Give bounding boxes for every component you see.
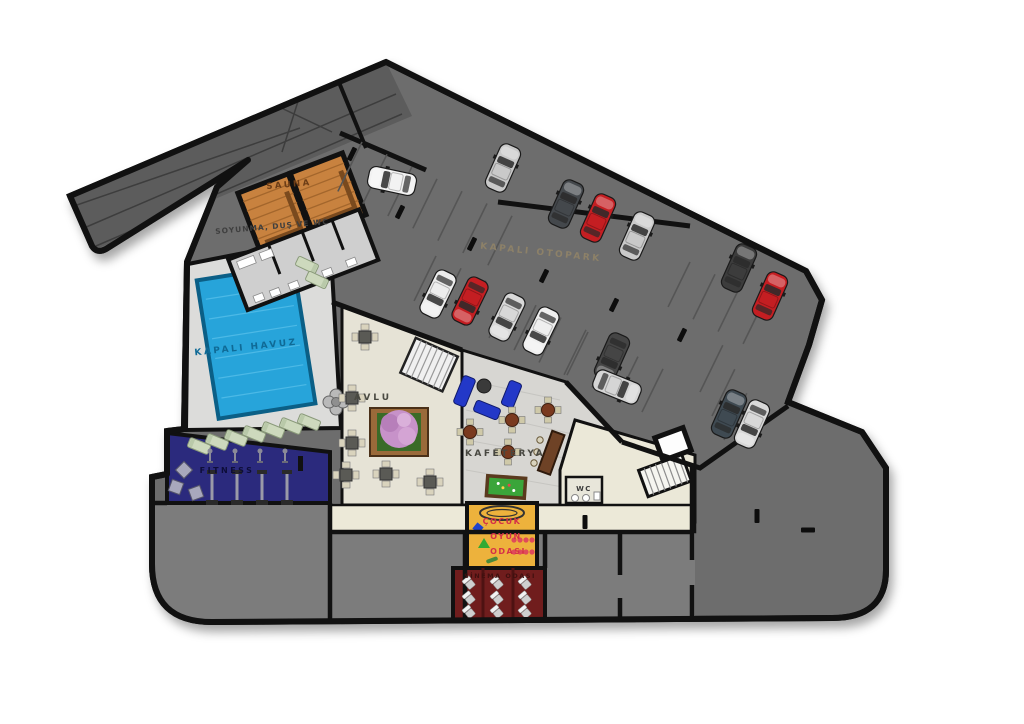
billiard-table <box>486 476 525 499</box>
wheel-stop <box>583 515 588 529</box>
floor-plan-canvas: SAUNA SOYUNMA, DUŞ VE WC KAPALI HAVUZ FI… <box>0 0 1024 724</box>
bar-stool <box>537 437 543 443</box>
courtyard-label: AVLU <box>354 393 392 403</box>
bar-stool <box>531 460 537 466</box>
wheel-stop <box>801 528 815 533</box>
kids-label-line2: OYUN <box>490 532 522 541</box>
kids-label-line1: ÇOCUK <box>483 517 522 526</box>
kids-label-line3: ODASI <box>490 547 526 556</box>
cinema-seats <box>462 576 532 620</box>
round-table <box>477 379 491 393</box>
cinema-label: SİNEMA ODASI <box>464 571 536 580</box>
cafeteria-label: KAFETERYA <box>465 449 545 459</box>
floor-plan-page: SAUNA SOYUNMA, DUŞ VE WC KAPALI HAVUZ FI… <box>0 0 1024 724</box>
wc-label: WC <box>576 485 592 493</box>
wheel-stop <box>755 509 760 523</box>
fitness-label: FITNESS <box>200 466 255 475</box>
